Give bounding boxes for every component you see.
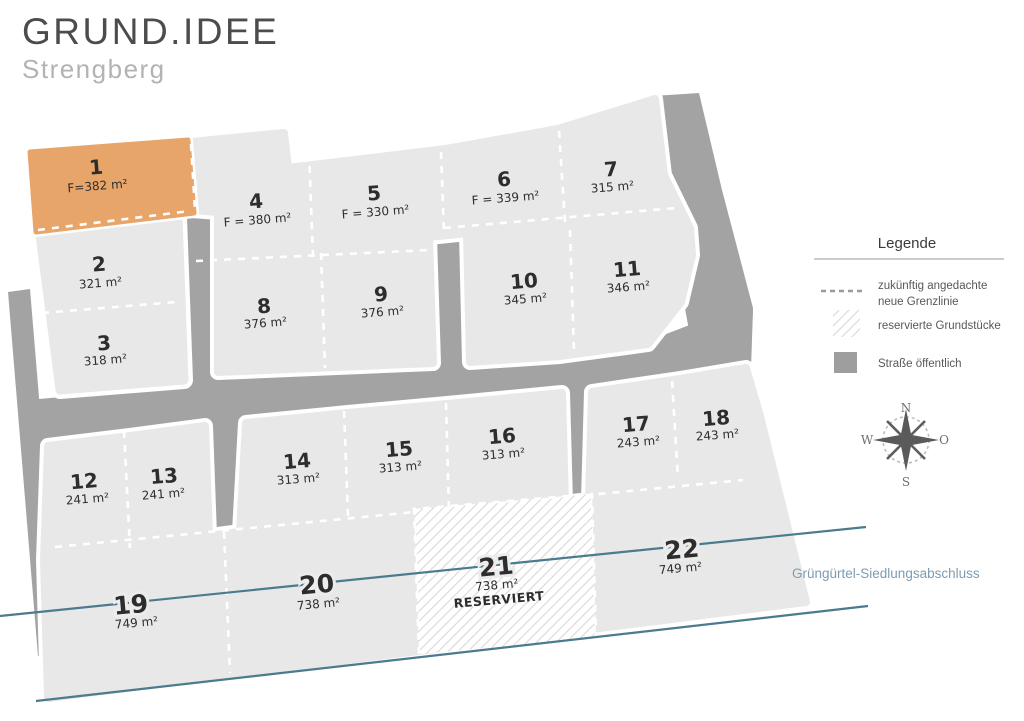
legend-item-3-label: Straße öffentlich [878, 358, 962, 370]
legend-item-1-line-1: zukünftig angedachte [878, 280, 987, 292]
svg-text:2: 2 [91, 252, 107, 277]
svg-text:9: 9 [373, 282, 389, 307]
compass-east-label: O [939, 433, 949, 447]
svg-text:13: 13 [149, 463, 179, 489]
compass-west-label: W [861, 433, 874, 447]
greenbelt-label: Grüngürtel-Siedlungsabschluss [792, 566, 980, 581]
svg-text:7: 7 [603, 157, 619, 182]
compass-rose: N S W O [861, 401, 949, 489]
svg-text:1: 1 [88, 155, 104, 180]
svg-text:5: 5 [366, 181, 382, 206]
site-plan-page: GRUND.IDEE Strengberg [0, 0, 1024, 721]
legend-title: Legende [878, 235, 936, 252]
svg-text:6: 6 [496, 167, 512, 192]
svg-text:10: 10 [509, 268, 539, 294]
svg-text:14: 14 [282, 448, 312, 474]
svg-text:11: 11 [612, 256, 642, 282]
site-plan-map: Grüngürtel-Siedlungsabschluss 1 F=382 m²… [0, 0, 1024, 721]
svg-text:17: 17 [621, 411, 651, 437]
hatched-square-icon [833, 310, 860, 337]
gray-square-icon [834, 352, 857, 373]
svg-text:12: 12 [69, 468, 99, 494]
compass-south-label: S [902, 475, 910, 489]
svg-text:4: 4 [248, 189, 264, 214]
legend: Legende zukünftig angedachte neue Grenzl… [814, 235, 1004, 373]
svg-text:15: 15 [384, 436, 414, 462]
legend-item-1-line-2: neue Grenzlinie [878, 296, 959, 308]
svg-text:16: 16 [487, 423, 517, 449]
compass-center [904, 438, 909, 443]
legend-item-2-label: reservierte Grundstücke [878, 320, 1001, 332]
compass-north-label: N [901, 401, 912, 415]
